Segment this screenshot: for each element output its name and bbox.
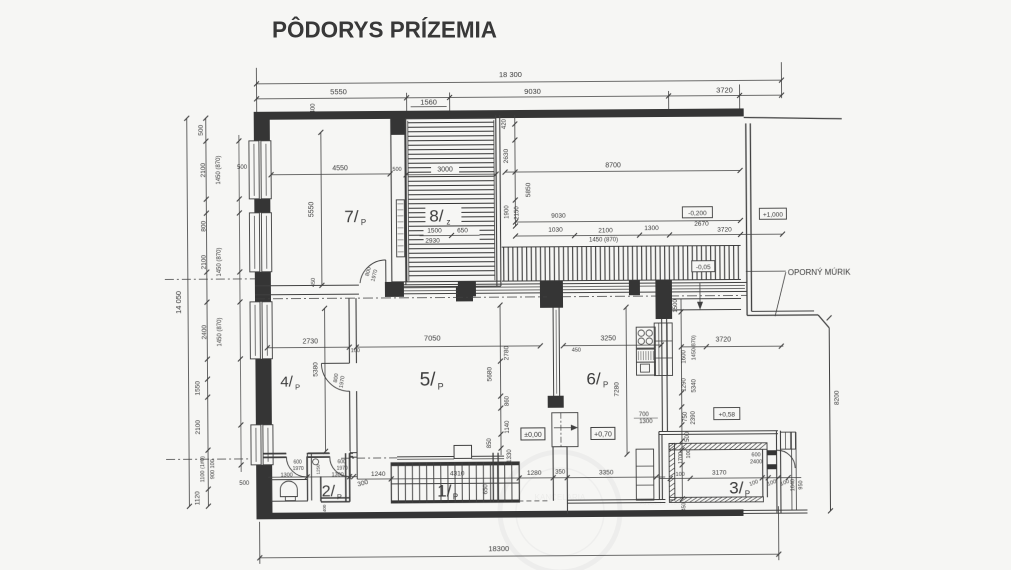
svg-text:2400: 2400 <box>201 325 208 340</box>
svg-text:450: 450 <box>681 502 687 511</box>
svg-text:P: P <box>438 382 444 392</box>
svg-text:8/: 8/ <box>429 207 444 226</box>
svg-text:1700: 1700 <box>678 452 684 464</box>
svg-text:1100 (1#0): 1100 (1#0) <box>200 456 206 482</box>
svg-text:600: 600 <box>293 460 302 466</box>
svg-text:P: P <box>603 380 608 389</box>
svg-text:5/: 5/ <box>420 370 437 391</box>
svg-text:8700: 8700 <box>605 162 621 169</box>
svg-text:2400: 2400 <box>750 459 762 465</box>
svg-text:7050: 7050 <box>424 334 441 343</box>
svg-text:1330: 1330 <box>507 449 513 463</box>
svg-text:7280: 7280 <box>614 382 621 397</box>
svg-text:950: 950 <box>798 480 804 489</box>
svg-text:2930: 2930 <box>425 238 440 245</box>
svg-text:1560: 1560 <box>420 98 437 107</box>
svg-text:5550: 5550 <box>308 202 315 218</box>
svg-text:3000: 3000 <box>437 166 453 173</box>
svg-text:1640: 1640 <box>790 479 796 491</box>
svg-text:-0,200: -0,200 <box>688 210 707 217</box>
svg-text:±0,00: ±0,00 <box>524 432 542 439</box>
svg-text:750: 750 <box>683 411 689 422</box>
svg-text:3350: 3350 <box>599 469 614 476</box>
svg-text:3250: 3250 <box>600 335 616 342</box>
svg-text:1300: 1300 <box>332 472 344 478</box>
svg-text:650: 650 <box>483 484 489 495</box>
svg-text:420: 420 <box>502 118 508 129</box>
svg-text:4310: 4310 <box>450 470 465 477</box>
svg-text:4/: 4/ <box>280 374 293 391</box>
svg-text:P: P <box>745 489 750 498</box>
svg-text:1450 (870): 1450 (870) <box>216 156 222 185</box>
svg-text:3170: 3170 <box>712 470 727 477</box>
svg-text:500: 500 <box>239 481 250 487</box>
svg-text:2390: 2390 <box>691 410 697 424</box>
svg-text:1250: 1250 <box>316 464 321 475</box>
svg-text:5550: 5550 <box>330 87 347 96</box>
svg-text:1120: 1120 <box>194 491 201 505</box>
svg-text:500: 500 <box>237 165 248 171</box>
svg-text:1450 (870): 1450 (870) <box>589 237 618 243</box>
svg-text:1900: 1900 <box>504 205 510 219</box>
svg-text:1140: 1140 <box>505 420 511 434</box>
svg-text:1500: 1500 <box>673 299 679 313</box>
svg-text:-0,05: -0,05 <box>696 264 711 271</box>
svg-text:5850: 5850 <box>525 182 532 197</box>
svg-text:1240: 1240 <box>371 471 386 478</box>
svg-text:7/: 7/ <box>344 207 359 226</box>
svg-text:900 100: 900 100 <box>210 459 216 479</box>
svg-text:1450 (870): 1450 (870) <box>217 318 223 347</box>
svg-text:850: 850 <box>487 438 493 449</box>
svg-text:18 300: 18 300 <box>499 70 522 79</box>
svg-text:3720: 3720 <box>716 86 733 95</box>
svg-text:2100: 2100 <box>201 255 208 270</box>
svg-text:3720: 3720 <box>717 227 732 234</box>
svg-text:1450 (870): 1450 (870) <box>217 248 223 277</box>
svg-text:1290: 1290 <box>682 378 688 392</box>
svg-text:P: P <box>337 492 342 501</box>
svg-text:1280: 1280 <box>527 470 542 477</box>
svg-text:350: 350 <box>555 470 566 476</box>
svg-text:5680: 5680 <box>486 367 493 382</box>
svg-text:z: z <box>446 217 450 226</box>
svg-text:2780: 2780 <box>503 345 510 360</box>
svg-text:1030: 1030 <box>548 227 563 234</box>
svg-text:1300: 1300 <box>644 225 659 232</box>
svg-text:3720: 3720 <box>715 337 731 344</box>
svg-text:P: P <box>453 492 458 501</box>
svg-text:450: 450 <box>572 348 581 354</box>
svg-text:2100: 2100 <box>200 163 207 178</box>
svg-text:1/: 1/ <box>437 481 452 500</box>
svg-text:2/: 2/ <box>322 483 336 500</box>
svg-text:500: 500 <box>685 431 691 442</box>
svg-text:6/: 6/ <box>586 369 601 388</box>
svg-text:18300: 18300 <box>488 544 509 553</box>
svg-text:100: 100 <box>686 449 692 458</box>
svg-text:14 050: 14 050 <box>174 291 183 314</box>
svg-text:9030: 9030 <box>524 87 541 96</box>
svg-text:100: 100 <box>351 348 360 354</box>
svg-text:+1,000: +1,000 <box>763 212 783 219</box>
svg-text:700: 700 <box>639 412 650 418</box>
svg-text:ANCELARIA: ANCELARIA <box>640 500 680 507</box>
svg-text:2150: 2150 <box>514 206 520 220</box>
svg-text:600: 600 <box>337 459 346 465</box>
svg-text:2100: 2100 <box>598 227 613 234</box>
svg-text:500: 500 <box>392 167 401 173</box>
svg-text:+0,58: +0,58 <box>719 411 736 418</box>
svg-text:5380: 5380 <box>312 362 319 377</box>
svg-text:1300: 1300 <box>281 473 293 479</box>
svg-text:650: 650 <box>457 227 468 234</box>
svg-text:1500: 1500 <box>427 228 442 235</box>
svg-text:100: 100 <box>676 472 685 478</box>
svg-text:2630: 2630 <box>503 148 510 163</box>
svg-text:P: P <box>361 218 366 227</box>
svg-text:2670: 2670 <box>694 221 709 228</box>
svg-text:PÔDORYS PRÍZEMIA: PÔDORYS PRÍZEMIA <box>272 16 497 43</box>
svg-text:1550: 1550 <box>195 381 202 396</box>
svg-text:1970: 1970 <box>293 466 304 472</box>
svg-text:KANCELARIA: KANCELARIA <box>535 493 586 502</box>
svg-text:1600: 1600 <box>681 350 687 364</box>
svg-text:9030: 9030 <box>551 213 566 220</box>
svg-text:OPORNÝ MÚRIK: OPORNÝ MÚRIK <box>788 268 851 277</box>
svg-text:400: 400 <box>322 504 327 512</box>
svg-text:2100: 2100 <box>195 420 202 435</box>
svg-text:1300: 1300 <box>639 419 653 425</box>
svg-text:4550: 4550 <box>332 165 348 172</box>
svg-text:8200: 8200 <box>834 390 841 405</box>
svg-text:+0,70: +0,70 <box>594 431 612 438</box>
svg-text:860: 860 <box>505 395 511 406</box>
svg-text:5340: 5340 <box>692 378 698 392</box>
svg-text:600: 600 <box>751 452 760 458</box>
svg-text:1450(870): 1450(870) <box>691 335 697 360</box>
svg-text:3/: 3/ <box>729 478 744 497</box>
svg-text:2730: 2730 <box>302 338 318 345</box>
svg-text:P: P <box>295 383 300 392</box>
svg-text:500: 500 <box>198 124 205 135</box>
svg-text:800: 800 <box>200 220 207 231</box>
